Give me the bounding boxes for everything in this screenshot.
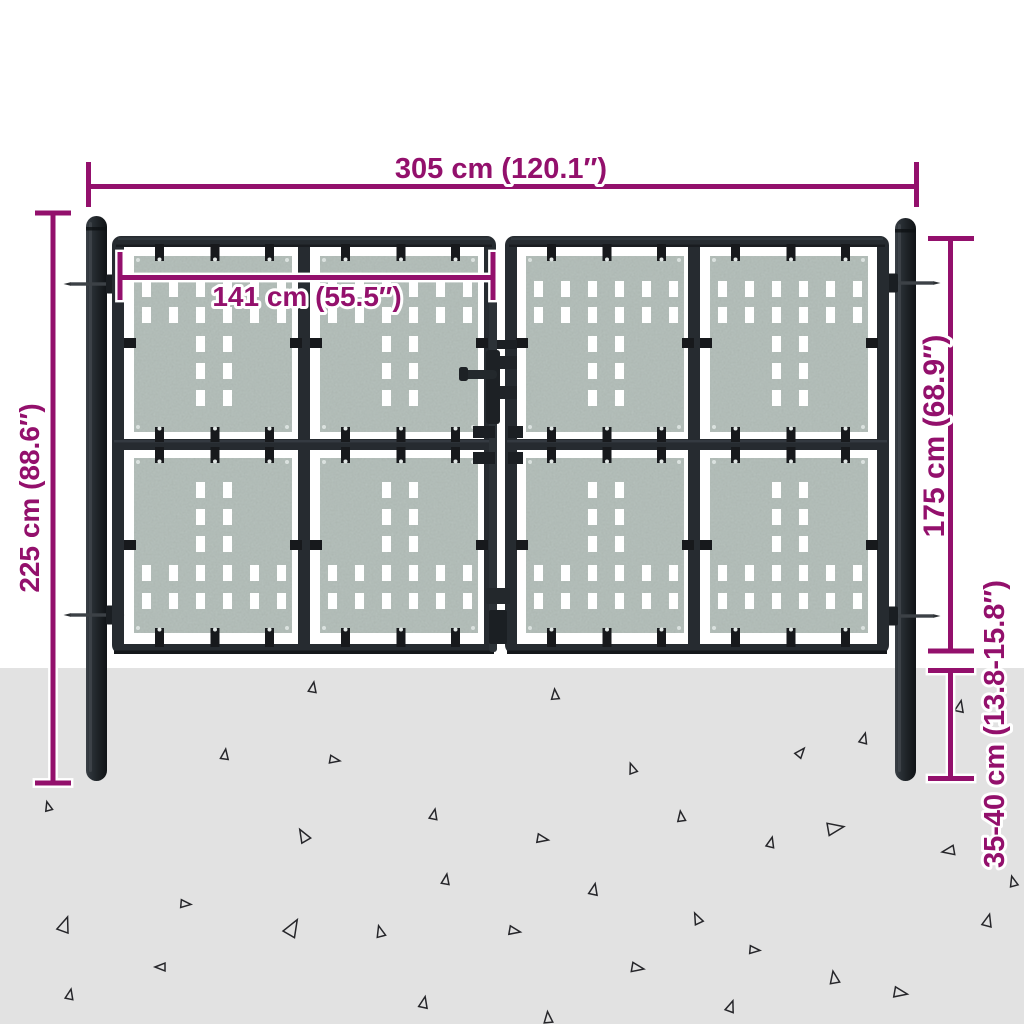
svg-text:35-40 cm (13.8-15.8″): 35-40 cm (13.8-15.8″): [979, 580, 1011, 868]
svg-text:225 cm (88.6″): 225 cm (88.6″): [14, 403, 45, 592]
svg-text:141 cm (55.5″): 141 cm (55.5″): [212, 281, 401, 312]
svg-text:175 cm (68.9″): 175 cm (68.9″): [918, 335, 951, 538]
svg-text:305 cm (120.1″): 305 cm (120.1″): [395, 153, 607, 185]
